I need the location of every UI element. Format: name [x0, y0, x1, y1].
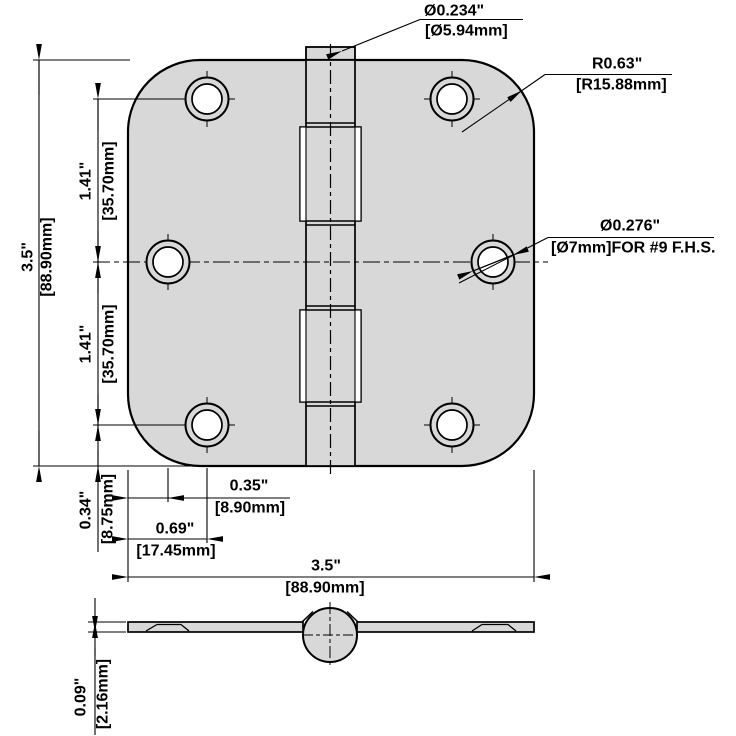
hole-dia-inch-label: Ø0.276" [600, 218, 660, 235]
edge-offset-middle-mm-label: [8.90mm] [215, 500, 285, 517]
front-view [93, 44, 548, 477]
height-mm-label: [88.90mm] [39, 217, 56, 296]
width-mm-label: [88.90mm] [285, 580, 364, 597]
right-leaf-edge [357, 622, 534, 632]
height-inch-label: 3.5" [20, 242, 37, 272]
edge-offset-corner-mm-label: [8.75mm] [100, 474, 117, 544]
drawing-canvas: Ø0.234" [Ø5.94mm] R0.63" [R15.88mm] Ø0.2… [0, 0, 736, 736]
radius-mm-label: [R15.88mm] [576, 77, 667, 94]
knuckle-2-gap-right [355, 127, 361, 221]
pin-dia-mm-label: [Ø5.94mm] [425, 23, 508, 40]
left-leaf-edge [128, 622, 303, 632]
edge-offset-corner-inch-label: 0.34" [78, 491, 95, 530]
knuckle-4-gap-right [355, 310, 361, 402]
hinge-technical-drawing: Ø0.234" [Ø5.94mm] R0.63" [R15.88mm] Ø0.2… [0, 0, 736, 736]
spacing-bottom-inch-label: 1.41" [78, 325, 95, 364]
spacing-top-inch-label: 1.41" [78, 162, 95, 201]
radius-inch-label: R0.63" [592, 56, 642, 73]
side-offset-corner-inch-label: 0.69" [156, 521, 195, 538]
thickness-mm-label: [2.16mm] [95, 659, 112, 729]
thickness-inch-label: 0.09" [73, 678, 90, 717]
spacing-top-mm-label: [35.70mm] [101, 141, 118, 220]
hole-dia-mm-label: [Ø7mm]FOR #9 F.H.S. [551, 240, 715, 257]
spacing-bottom-mm-label: [35.70mm] [101, 304, 118, 383]
knuckle-4-gap-left [300, 310, 306, 402]
knuckle-barrel [300, 44, 361, 477]
side-offset-corner-mm-label: [17.45mm] [136, 543, 215, 560]
pin-dia-inch-label: Ø0.234" [424, 3, 484, 20]
knuckle-2-gap-left [300, 127, 306, 221]
width-inch-label: 3.5" [311, 558, 341, 575]
edge-offset-middle-inch-label: 0.35" [230, 478, 269, 495]
